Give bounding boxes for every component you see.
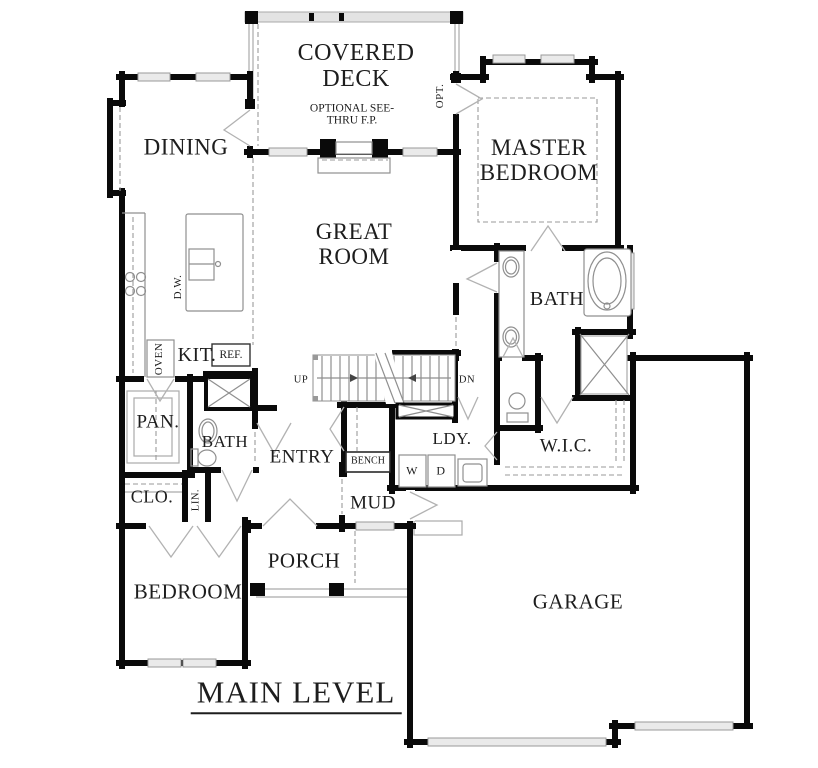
annotation-optional-door: OPT. (435, 84, 447, 109)
cooktop-burner (137, 273, 146, 282)
annotation-bench: BENCH (351, 457, 385, 468)
laundry-door (458, 397, 478, 419)
annotation-dryer: D (436, 465, 445, 478)
annotation-optional-fireplace: OPTIONAL SEE-THRU F.P. (302, 103, 402, 128)
room-label-wic: W.I.C. (540, 437, 592, 458)
wic-door (541, 397, 573, 423)
room-label-mud: MUD (350, 494, 396, 515)
annotation-stairs-up: UP (294, 374, 308, 385)
room-label-porch: PORCH (268, 550, 341, 573)
room-label-garage: GARAGE (533, 591, 624, 614)
room-label-covered-deck: COVERED DECK (281, 41, 431, 93)
annotation-oven: OVEN (154, 343, 166, 376)
room-label-hall-bath: BATH (202, 433, 248, 451)
floor-plan-drawing (0, 0, 818, 768)
garage-stoop (414, 521, 462, 535)
toilet (509, 393, 525, 409)
master-bath-door (467, 263, 497, 292)
porch-post (329, 583, 344, 596)
room-label-dining: DINING (144, 136, 229, 161)
room-label-kitchen: KIT. (178, 345, 217, 367)
room-label-bedroom: BEDROOM (134, 581, 243, 604)
garage-door-right (635, 722, 733, 730)
annotation-stairs-down: DN (459, 374, 475, 385)
cooktop-burner (137, 287, 146, 296)
garage-door-left (428, 738, 606, 746)
room-label-master-bedroom: MASTER BEDROOM (467, 136, 612, 186)
fireplace (318, 139, 390, 173)
floor-plan-page: COVERED DECK OPTIONAL SEE-THRU F.P. OPT.… (0, 0, 818, 768)
room-label-closet: CLO. (131, 487, 174, 506)
room-label-master-bath: BATH (530, 289, 584, 311)
toilet (198, 450, 216, 466)
annotation-dishwasher: D.W. (173, 275, 185, 300)
room-label-entry: ENTRY (270, 448, 335, 469)
annotation-refrigerator: REF. (219, 349, 242, 361)
room-label-laundry: LDY. (433, 430, 472, 448)
room-label-pantry: PAN. (136, 413, 179, 434)
room-label-linen: LIN. (190, 489, 201, 511)
front-door (263, 499, 317, 526)
annotation-washer: W (406, 465, 418, 478)
porch-post (250, 583, 265, 596)
hall-bath-fixtures (191, 377, 252, 466)
room-label-great-room: GREAT ROOM (307, 220, 402, 270)
tub-platform (584, 249, 631, 316)
plan-title: MAIN LEVEL (191, 675, 402, 714)
